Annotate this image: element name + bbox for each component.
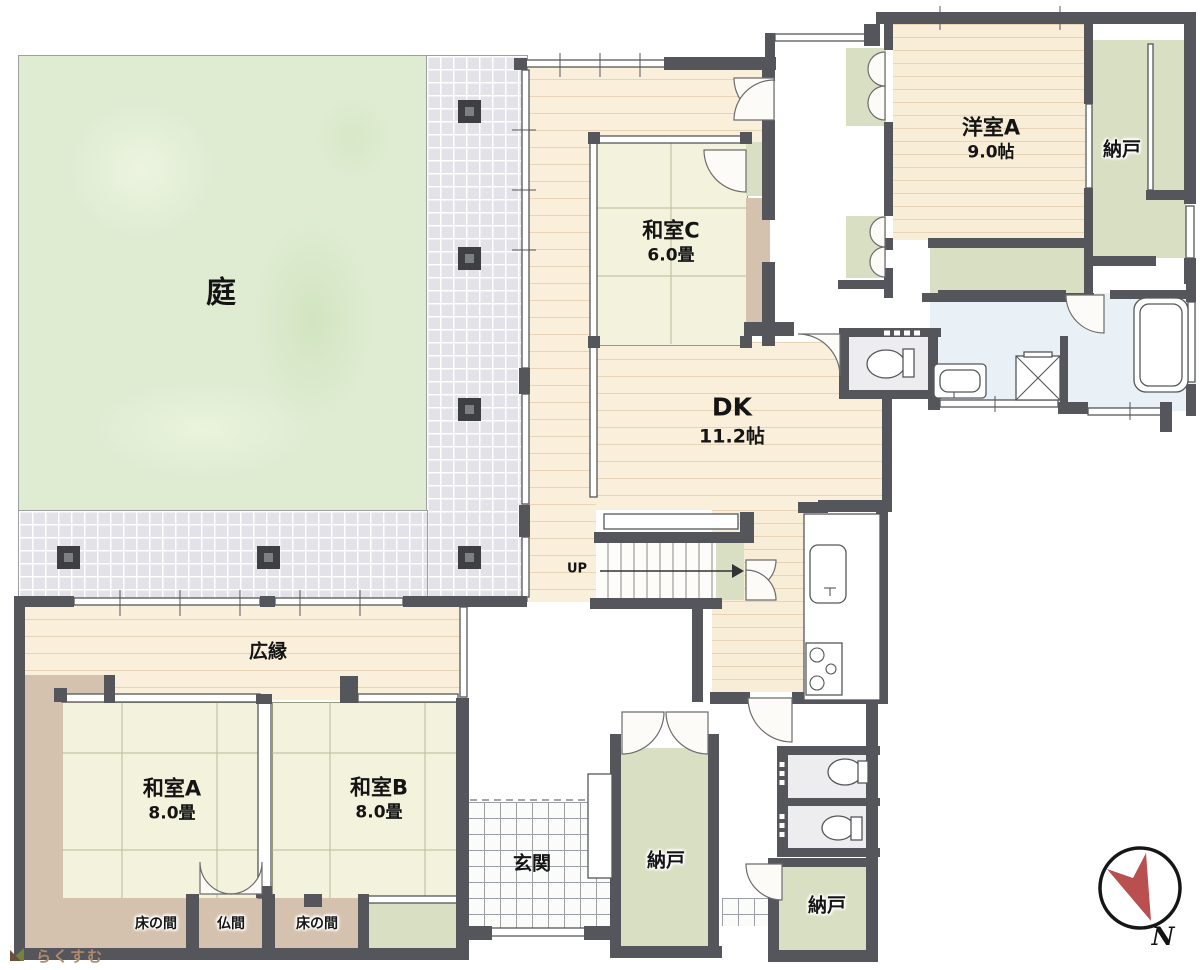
hall-closet-1: [846, 48, 886, 126]
toilet-br-1-floor: [788, 755, 868, 800]
stairs-closet: [716, 542, 744, 600]
room-label-butsuma: 仏間: [217, 915, 245, 933]
washitsu-c-tokonoma: [746, 198, 770, 324]
room-label-nando-bottom-right: 納戸: [808, 894, 846, 919]
washitsu-b-closet: [366, 900, 458, 950]
yoshitsu-a-closet: [930, 243, 1086, 295]
compass-north-label: N: [1152, 921, 1175, 954]
walkway-tile-vertical: [426, 55, 528, 602]
west-tan-corridor: [23, 675, 63, 948]
bathroom-floor: [1062, 293, 1196, 411]
hall-closet-2: [846, 216, 886, 278]
stairs-up-label: UP: [567, 562, 587, 579]
approach-tile: [722, 898, 776, 926]
room-label-garden: 庭: [206, 274, 238, 313]
room-label-tokonoma-a: 床の間: [135, 915, 177, 933]
washroom-floor: [930, 293, 1066, 405]
floorplan: 庭 和室C 6.0畳 DK 11.2帖 洋室A 9.0帖 納戸 広縁 和室A 8…: [0, 0, 1200, 970]
toilet-room-floor: [849, 336, 931, 390]
room-label-yoshitsu-a: 洋室A 9.0帖: [962, 114, 1020, 163]
room-label-genkan: 玄関: [513, 852, 551, 877]
room-label-washitsu-c: 和室C 6.0畳: [642, 217, 699, 266]
toilet-br-2-floor: [788, 806, 868, 850]
west-corridor-floor: [528, 62, 596, 602]
room-label-nando-center: 納戸: [647, 849, 685, 874]
watermark-text: らくすむ: [36, 947, 104, 967]
room-label-washitsu-a: 和室A 8.0畳: [143, 775, 201, 824]
washitsu-c-top-corridor: [596, 62, 772, 142]
kitchen-corridor-floor: [712, 510, 804, 692]
washitsu-c-closet: [746, 142, 770, 196]
room-label-dk: DK 11.2帖: [699, 391, 765, 448]
rakusumu-logo-icon: [10, 948, 24, 961]
west-tan-corner: [23, 675, 113, 703]
north-compass-icon: [1100, 848, 1180, 928]
room-label-tokonoma-b: 床の間: [296, 915, 338, 933]
room-label-nando-top-right: 納戸: [1103, 138, 1141, 163]
walkway-tile-horizontal: [18, 510, 428, 602]
room-label-washitsu-b: 和室B 8.0畳: [350, 774, 408, 823]
room-label-hiroen: 広縁: [249, 640, 287, 665]
